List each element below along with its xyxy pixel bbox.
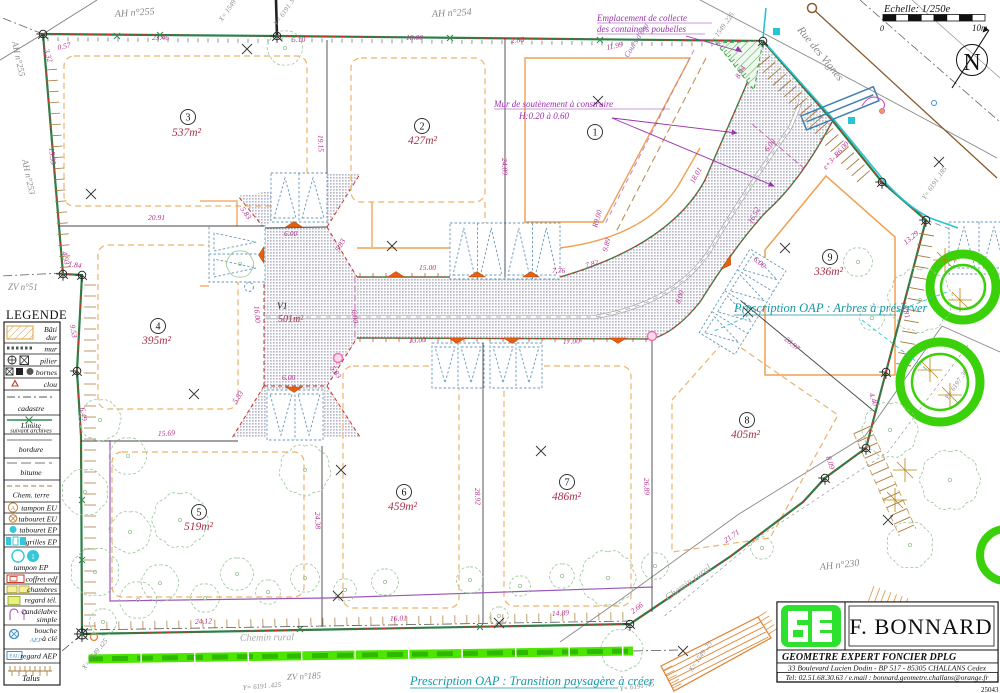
svg-text:3: 3	[186, 113, 191, 124]
svg-text:16.00: 16.00	[252, 305, 262, 323]
svg-text:2.86: 2.86	[510, 35, 524, 45]
svg-text:1: 1	[31, 553, 35, 561]
svg-text:suivant archives: suivant archives	[10, 428, 52, 435]
svg-text:regard tél.: regard tél.	[25, 596, 57, 605]
svg-text:17.00: 17.00	[563, 336, 581, 346]
svg-text:14.89: 14.89	[552, 608, 570, 618]
svg-text:427m²: 427m²	[408, 135, 438, 147]
svg-text:336m²: 336m²	[813, 266, 844, 278]
svg-text:Echelle: 1/250e: Echelle: 1/250e	[883, 4, 951, 15]
svg-text:Chemin rural: Chemin rural	[240, 632, 295, 644]
svg-text:tabouret EU: tabouret EU	[19, 515, 59, 524]
svg-text:chambres: chambres	[27, 585, 57, 594]
svg-text:Prescription OAP : Transition: Prescription OAP : Transition paysagère …	[409, 674, 654, 688]
svg-text:486m²: 486m²	[552, 491, 582, 503]
svg-text:6.00: 6.00	[284, 229, 297, 238]
svg-text:23.46: 23.46	[152, 33, 169, 42]
svg-text:15.00: 15.00	[419, 263, 436, 272]
svg-text:AH n°254: AH n°254	[431, 7, 472, 20]
svg-text:H:0.20 à 0.60: H:0.20 à 0.60	[518, 111, 569, 121]
svg-text:13.00: 13.00	[409, 335, 427, 345]
svg-text:coffret edf: coffret edf	[25, 575, 58, 584]
svg-text:EAU: EAU	[9, 655, 20, 660]
svg-text:18.00: 18.00	[406, 33, 423, 42]
svg-text:Chem. terre: Chem. terre	[13, 491, 50, 500]
svg-text:4: 4	[156, 322, 161, 333]
svg-text:519m²: 519m²	[184, 521, 214, 533]
svg-text:20.91: 20.91	[148, 213, 165, 222]
svg-text:8: 8	[745, 416, 750, 427]
svg-text:24.09: 24.09	[500, 158, 510, 176]
svg-text:simple: simple	[37, 615, 58, 624]
svg-text:5: 5	[197, 508, 202, 519]
svg-text:24.38: 24.38	[313, 512, 323, 530]
svg-text:26.89: 26.89	[642, 478, 652, 496]
svg-text:tabouret EP: tabouret EP	[19, 526, 57, 535]
svg-text:6.00: 6.00	[282, 373, 295, 382]
svg-text:25043: 25043	[981, 686, 999, 693]
svg-text:0: 0	[880, 24, 884, 33]
svg-text:grilles EP: grilles EP	[26, 538, 58, 547]
svg-text:459m²: 459m²	[388, 501, 418, 513]
svg-text:ZV n°185: ZV n°185	[287, 670, 322, 682]
svg-text:Prescription OAP : Arbres à pr: Prescription OAP : Arbres à préserver	[733, 301, 928, 315]
svg-text:16.01: 16.01	[390, 613, 407, 623]
svg-text:AEP: AEP	[29, 637, 42, 644]
svg-text:15.69: 15.69	[158, 428, 176, 438]
svg-text:501m²: 501m²	[278, 314, 304, 325]
svg-text:24.12: 24.12	[195, 616, 213, 626]
svg-text:7.76: 7.76	[552, 266, 565, 275]
svg-text:tampon EU: tampon EU	[21, 504, 58, 513]
svg-text:ZV n°51: ZV n°51	[8, 282, 38, 292]
svg-text:33 Boulevard Lucien Dodin - B: 33 Boulevard Lucien Dodin - BP 517 - 853…	[787, 664, 987, 673]
svg-text:9: 9	[828, 253, 833, 264]
svg-text:V1: V1	[277, 302, 288, 312]
svg-text:bitume: bitume	[20, 468, 42, 477]
svg-text:regard AEP: regard AEP	[20, 652, 57, 661]
svg-text:28.92: 28.92	[473, 488, 483, 506]
svg-text:F. BONNARD: F. BONNARD	[849, 614, 992, 639]
svg-text:GEOMETRE EXPERT FONCIER DPLG: GEOMETRE EXPERT FONCIER DPLG	[782, 652, 957, 663]
svg-text:cadastre: cadastre	[18, 404, 45, 413]
svg-text:A: A	[11, 506, 16, 512]
svg-text:bornes: bornes	[36, 368, 57, 377]
svg-text:pilier: pilier	[39, 357, 58, 366]
svg-text:5.10: 5.10	[292, 35, 305, 44]
svg-text:Talus: Talus	[22, 674, 40, 683]
svg-text:1: 1	[593, 128, 598, 139]
svg-text:clou: clou	[44, 380, 58, 389]
svg-text:à clé: à clé	[42, 634, 57, 643]
svg-text:395m²: 395m²	[141, 335, 172, 347]
svg-text:LEGENDE: LEGENDE	[6, 308, 67, 322]
svg-text:Mur de soutènement à construir: Mur de soutènement à construire	[493, 99, 613, 109]
svg-text:dur: dur	[46, 333, 58, 342]
svg-text:405m²: 405m²	[731, 429, 761, 441]
svg-text:19.15: 19.15	[316, 135, 326, 153]
svg-text:tampon EP: tampon EP	[14, 563, 49, 572]
svg-text:N: N	[963, 50, 980, 76]
svg-text:537m²: 537m²	[172, 127, 202, 139]
svg-text:2: 2	[420, 122, 425, 133]
svg-text:6.00: 6.00	[350, 309, 360, 323]
svg-text:mur: mur	[44, 345, 58, 354]
svg-text:7: 7	[565, 478, 570, 489]
svg-text:Tel: 02.51.68.30.63 / e.mail: Tel: 02.51.68.30.63 / e.mail : bonnard.g…	[786, 673, 989, 682]
svg-text:6: 6	[402, 488, 407, 499]
svg-text:bordure: bordure	[19, 445, 44, 454]
